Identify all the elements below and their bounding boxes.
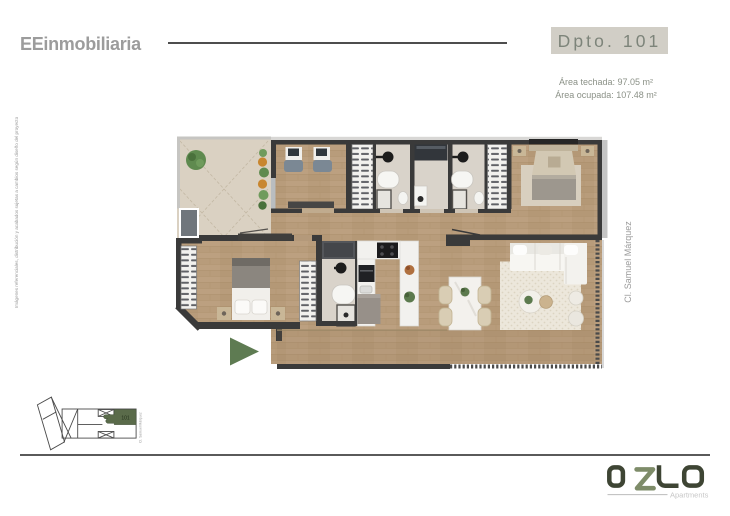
svg-text:Cl. Samuel Márquez: Cl. Samuel Márquez [139, 412, 143, 443]
svg-text:Apartments: Apartments [670, 491, 709, 500]
svg-text:101: 101 [121, 416, 130, 422]
